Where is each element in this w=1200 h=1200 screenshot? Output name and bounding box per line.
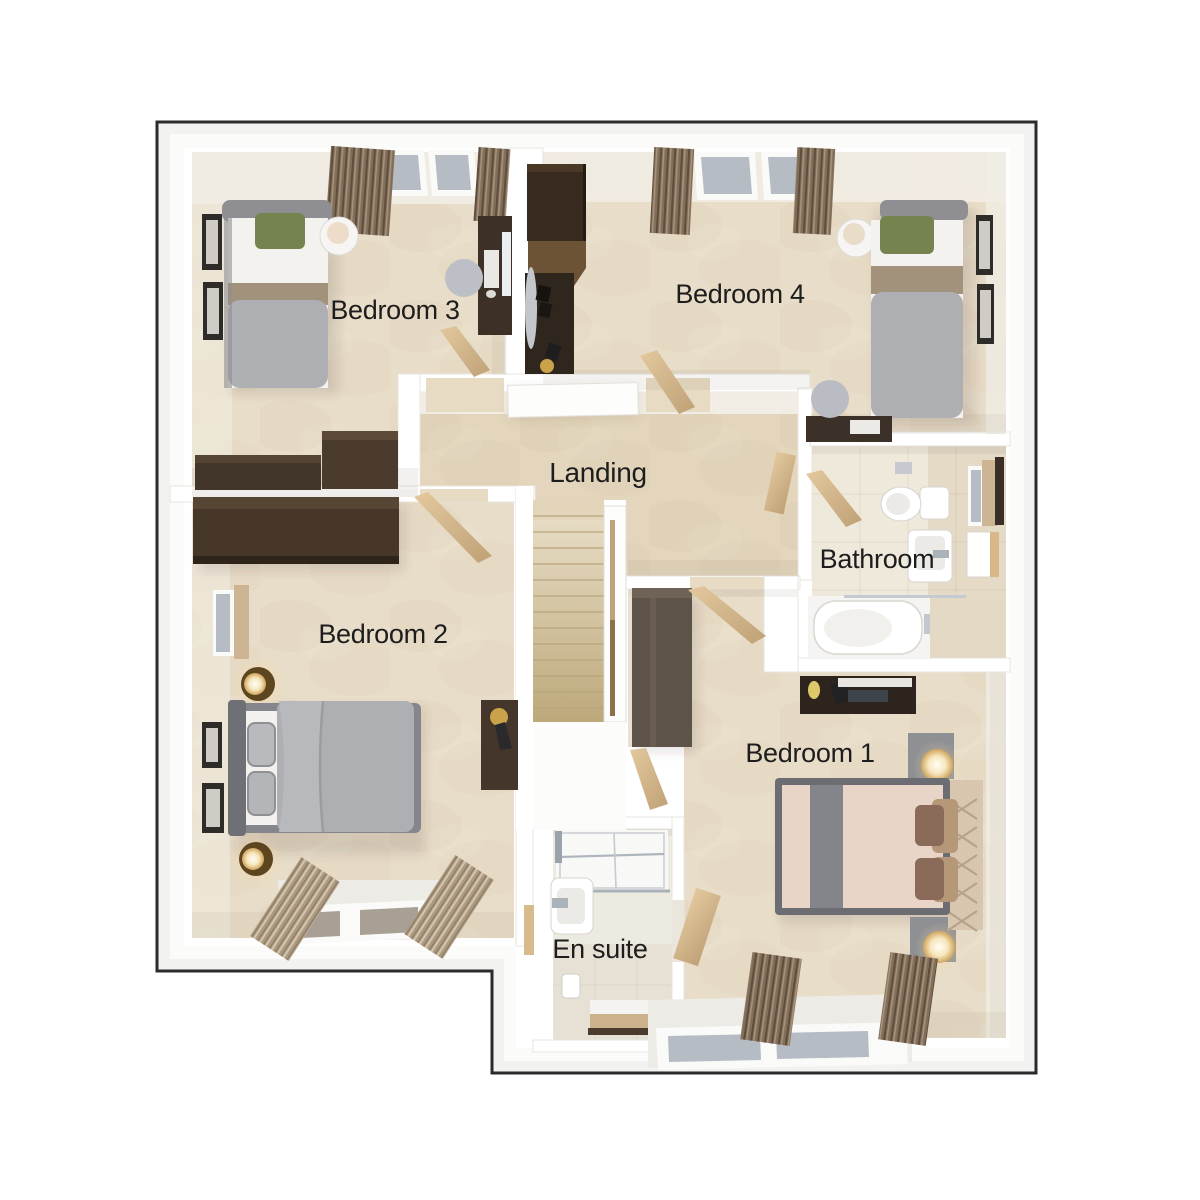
svg-text:Bedroom 2: Bedroom 2	[318, 619, 447, 649]
svg-text:Landing: Landing	[549, 457, 647, 488]
svg-text:Bathroom: Bathroom	[820, 544, 935, 574]
svg-text:En suite: En suite	[552, 934, 647, 964]
svg-text:Bedroom 3: Bedroom 3	[330, 295, 459, 325]
svg-text:Bedroom 4: Bedroom 4	[675, 279, 805, 309]
svg-text:Bedroom 1: Bedroom 1	[745, 738, 874, 768]
